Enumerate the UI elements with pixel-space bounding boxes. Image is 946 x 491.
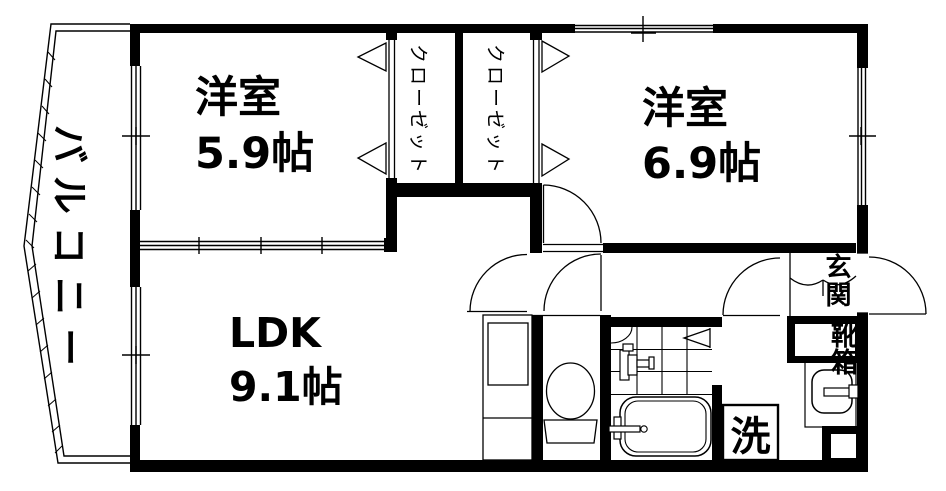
- bedroom1-size: 5.9帖: [195, 126, 314, 182]
- closet-doors: [358, 40, 569, 183]
- room-label-laundry: 洗: [723, 405, 778, 460]
- door-entrance: [857, 253, 926, 314]
- door-toilet: [533, 254, 601, 316]
- floor-plan-drawing: [0, 0, 946, 491]
- closet-right-door-lower: [542, 144, 569, 176]
- window-left-lower: [122, 287, 150, 425]
- wall-closet-divider: [455, 24, 463, 190]
- door-ldk: [467, 255, 527, 312]
- wall-left-upper: [130, 24, 140, 66]
- floor-plan-page: { "rooms": { "balcony": {"label": "バルコニー…: [0, 0, 946, 491]
- wall-bedroom1-closet-top: [386, 24, 397, 40]
- bathroom: [609, 327, 712, 456]
- wall-top-right: [713, 24, 868, 33]
- wall-right-upper: [857, 24, 868, 68]
- sliding-partition: [140, 237, 386, 254]
- room-label-entrance: 玄関: [820, 253, 852, 317]
- bath-corner-arc: [611, 327, 632, 343]
- room-label-shoebox: 靴箱: [794, 321, 856, 357]
- ldk-name: LDK: [229, 306, 343, 360]
- closet-right-door-upper: [542, 41, 569, 72]
- closet-left-door-lower: [358, 143, 386, 174]
- pipe-space-inner: [831, 434, 856, 458]
- wall-bath-right: [712, 385, 722, 460]
- door-washroom: [723, 258, 780, 316]
- ldk-size: 9.1帖: [229, 360, 343, 414]
- wall-bath-top: [605, 317, 722, 327]
- wall-toilet-left: [532, 315, 543, 460]
- room-label-balcony: バルコニー: [54, 112, 100, 392]
- door-bedroom2: [543, 185, 603, 252]
- tub-faucet-knob: [641, 426, 647, 432]
- window-left-upper: [122, 66, 150, 210]
- toilet-fixture: [544, 363, 597, 443]
- wall-closet-right-top: [530, 24, 542, 40]
- kitchen-counter: [483, 315, 532, 460]
- window-top: [575, 16, 713, 42]
- tub-faucet-bar: [609, 426, 640, 432]
- wall-left-mid: [130, 210, 140, 287]
- room-label-bedroom1: 洋室 5.9帖: [195, 70, 314, 182]
- wall-closet-bottom: [386, 183, 530, 197]
- room-label-ldk: LDK 9.1帖: [229, 306, 343, 414]
- window-right: [849, 68, 876, 205]
- kitchen-sink: [488, 323, 528, 385]
- wall-toilet-right: [600, 315, 611, 460]
- closet-left-door-upper: [358, 43, 386, 71]
- bathtub: [609, 397, 711, 456]
- room-label-bedroom2: 洋室 6.9帖: [642, 82, 761, 192]
- bedroom1-name: 洋室: [195, 70, 314, 126]
- wall-closet-right-bottom: [530, 183, 542, 253]
- toilet-bowl: [547, 363, 595, 419]
- toilet-tank: [544, 420, 597, 443]
- wall-top-left: [130, 24, 575, 33]
- wall-right-mid: [857, 205, 868, 253]
- room-label-closet-left: クローゼット: [407, 40, 433, 180]
- basin-faucet-tab: [849, 385, 858, 398]
- bedroom2-size: 6.9帖: [642, 137, 761, 192]
- room-label-closet-right: クローゼット: [484, 40, 510, 180]
- door-bath-folding: [684, 328, 710, 348]
- bedroom2-name: 洋室: [642, 82, 761, 137]
- wall-bottom: [130, 460, 868, 472]
- wall-bedroom2-bottom: [603, 243, 856, 253]
